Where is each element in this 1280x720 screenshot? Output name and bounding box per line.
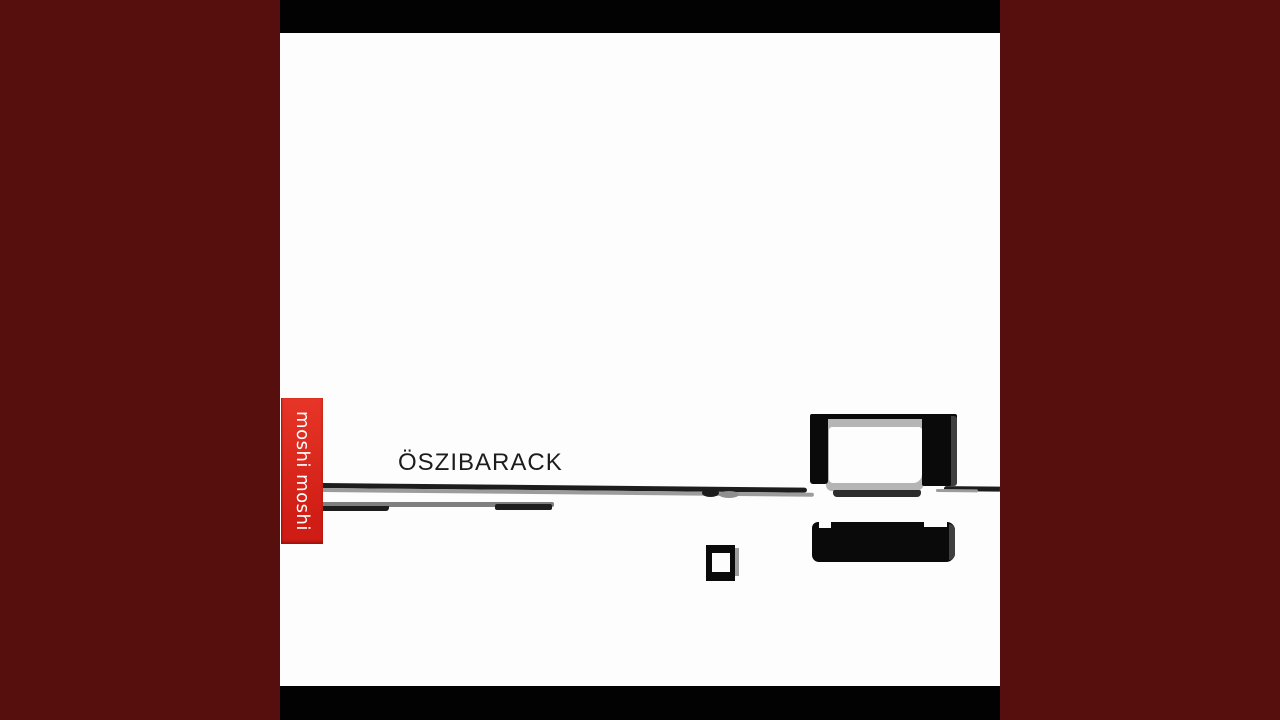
abstract-frame-shape — [810, 414, 957, 497]
secondary-rule-black-left — [322, 506, 389, 511]
small-square-outline — [706, 545, 735, 581]
frame-inner-white — [829, 427, 922, 483]
frame-right-gray-edge — [951, 416, 957, 486]
frame-right-block — [922, 414, 953, 486]
slab-right-gray-edge — [949, 524, 955, 560]
abstract-black-slab — [812, 522, 955, 562]
album-bottom-bar — [280, 686, 1000, 720]
ink-blob-gray — [719, 491, 739, 498]
album-white-area — [280, 33, 1000, 686]
artist-title: ÖSZIBARACK — [398, 449, 563, 477]
frame-bottom-shadow — [833, 490, 921, 497]
secondary-rule-black-mid — [495, 504, 552, 510]
frame-left-bar — [810, 416, 828, 484]
slab-top-notch-left — [819, 522, 831, 528]
record-label-badge: moshi moshi — [281, 398, 323, 544]
slab-top-notch-right — [924, 522, 947, 527]
maroon-background: moshi moshi ÖSZIBARACK — [0, 0, 1280, 720]
album-top-bar — [280, 0, 1000, 33]
record-label-name: moshi moshi — [281, 398, 323, 544]
ink-blob-dark — [702, 489, 719, 497]
album-cover: moshi moshi ÖSZIBARACK — [280, 0, 1000, 720]
